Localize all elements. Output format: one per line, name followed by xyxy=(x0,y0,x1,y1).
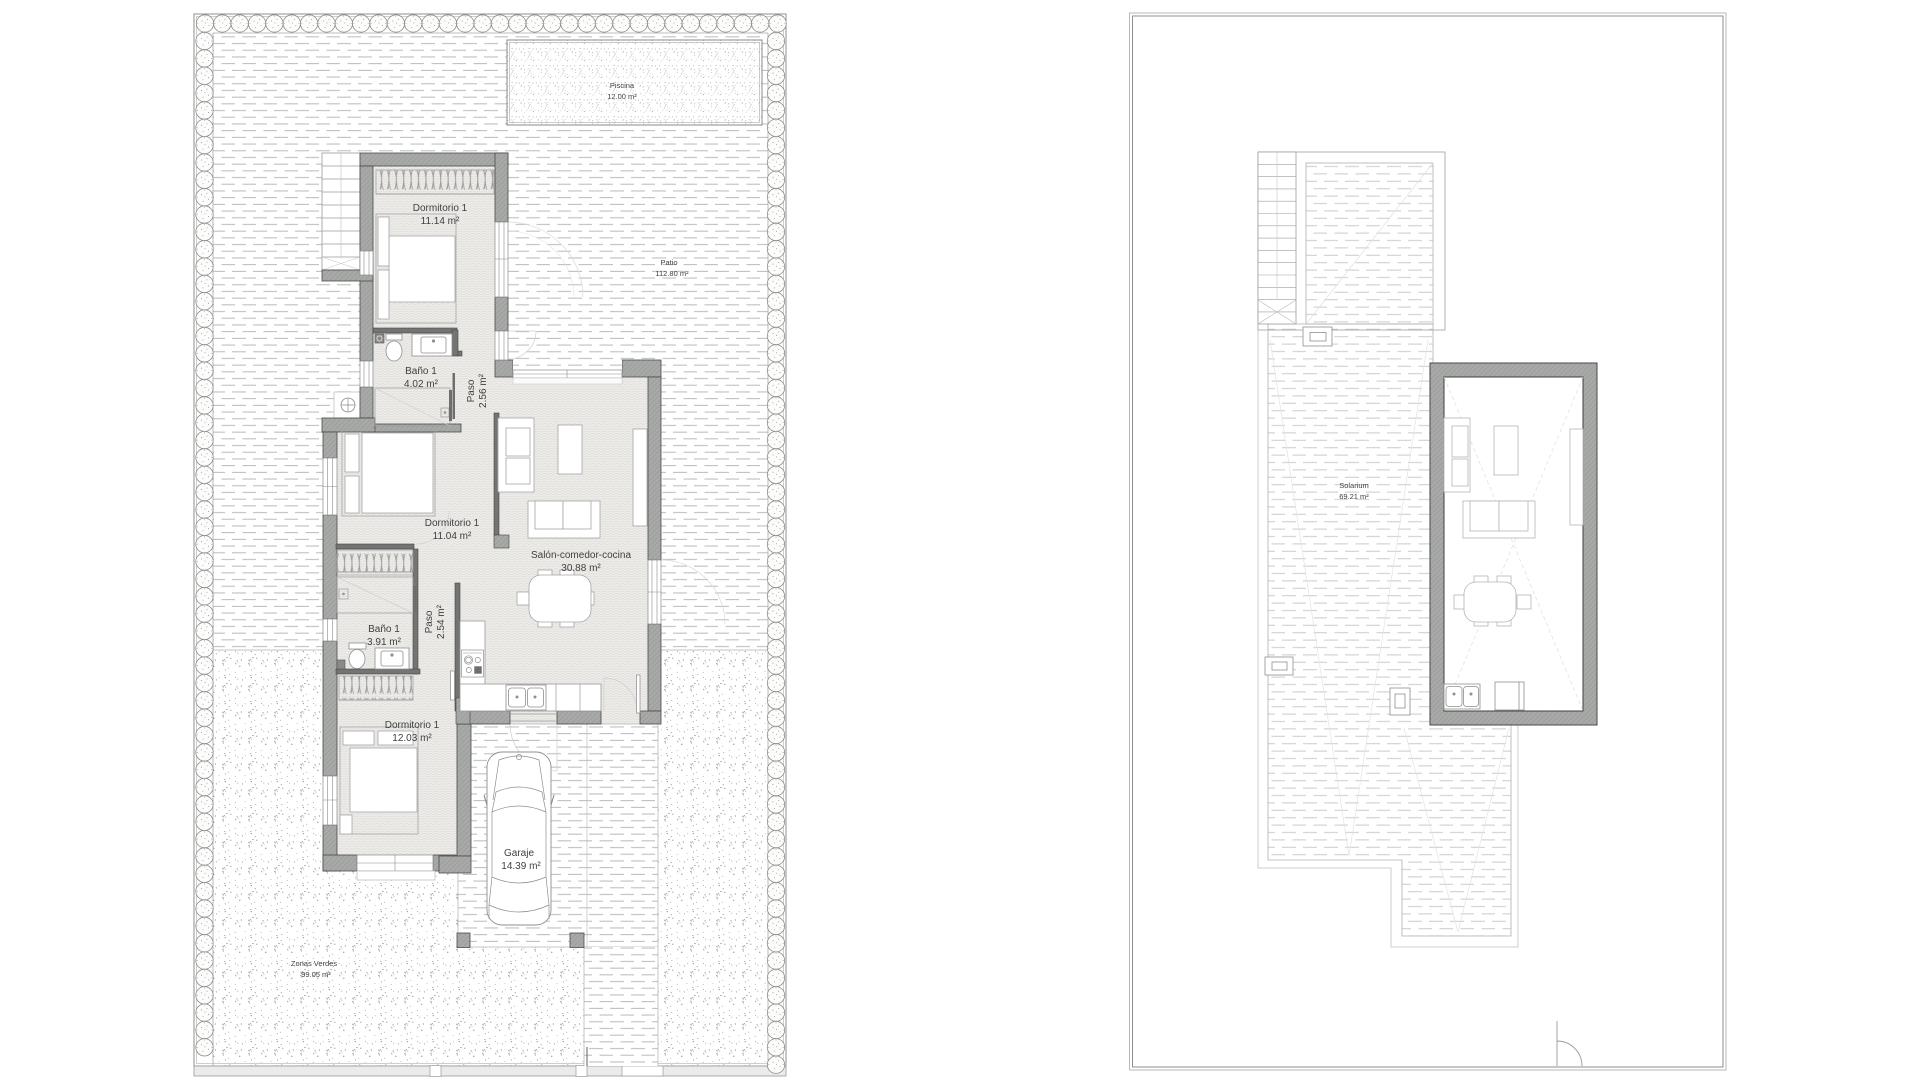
svg-text:Solarium: Solarium xyxy=(1339,481,1369,490)
svg-text:Baño 1: Baño 1 xyxy=(405,366,437,377)
svg-text:4.02 m²: 4.02 m² xyxy=(404,379,439,390)
svg-text:Zonas Verdes: Zonas Verdes xyxy=(291,959,338,968)
svg-text:11.14 m²: 11.14 m² xyxy=(421,216,460,227)
svg-text:Dormitorio 1: Dormitorio 1 xyxy=(425,518,480,529)
svg-text:30.88 m²: 30.88 m² xyxy=(561,563,601,574)
svg-text:14.39 m²: 14.39 m² xyxy=(501,861,541,872)
svg-text:Salón-comedor-cocina: Salón-comedor-cocina xyxy=(531,550,631,561)
svg-text:11.04 m²: 11.04 m² xyxy=(433,531,472,542)
svg-text:Baño 1: Baño 1 xyxy=(368,624,400,635)
svg-text:69.21 m²: 69.21 m² xyxy=(1339,492,1369,501)
svg-text:2.54 m²: 2.54 m² xyxy=(436,604,447,639)
svg-text:Paso: Paso xyxy=(424,610,435,633)
svg-text:Paso: Paso xyxy=(466,379,477,402)
svg-text:Piscina: Piscina xyxy=(610,81,635,90)
svg-text:2.56 m²: 2.56 m² xyxy=(478,373,489,408)
svg-text:3.91 m²: 3.91 m² xyxy=(367,637,402,648)
svg-text:12.00 m²: 12.00 m² xyxy=(607,92,637,101)
svg-text:99.05 m²: 99.05 m² xyxy=(301,970,331,979)
svg-text:12.03 m²: 12.03 m² xyxy=(392,733,432,744)
svg-text:Garaje: Garaje xyxy=(504,848,534,859)
svg-text:Patio: Patio xyxy=(660,258,677,267)
svg-text:Dormitorio 1: Dormitorio 1 xyxy=(413,203,468,214)
svg-text:Dormitorio 1: Dormitorio 1 xyxy=(385,720,440,731)
svg-text:112.80 m²: 112.80 m² xyxy=(655,269,689,278)
